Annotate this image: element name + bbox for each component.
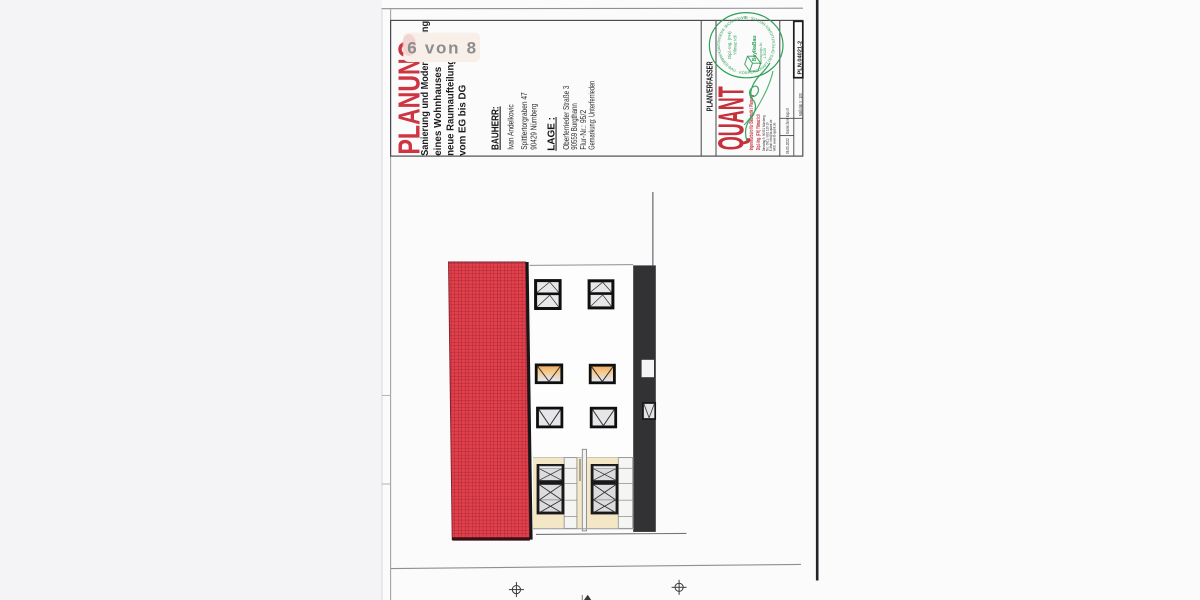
svg-text:Oberferrieder Straße 3: Oberferrieder Straße 3	[562, 85, 571, 149]
svg-text:1-5026: 1-5026	[763, 48, 767, 59]
svg-text:BayIkaBau: BayIkaBau	[752, 36, 758, 62]
svg-text:Web: www.ib-quant.de: Web: www.ib-quant.de	[772, 123, 777, 152]
svg-text:Spittlertorgraben 47: Spittlertorgraben 47	[520, 92, 530, 149]
svg-text:vom EG bis DG: vom EG bis DG	[457, 85, 468, 156]
svg-text:PLN.04021-2: PLN.04021-2	[797, 41, 803, 75]
svg-text:Flur-Nr.: 95/2: Flur-Nr.: 95/2	[579, 110, 589, 150]
svg-text:neue Raumaufteilung: neue Raumaufteilung	[445, 59, 457, 156]
svg-text:Gemarkung: Unterferrieden: Gemarkung: Unterferrieden	[589, 80, 597, 149]
svg-text:Gezeichnet Export: Gezeichnet Export	[786, 108, 791, 134]
svg-text:Ivan Andelkovic: Ivan Andelkovic	[506, 104, 516, 150]
svg-text:BAUHERR:: BAUHERR:	[488, 106, 500, 150]
svg-text:Ingenieurbüro für Baustatik /: Ingenieurbüro für Baustatik / Planung	[748, 94, 754, 150]
svg-text:LAGE :: LAGE :	[546, 117, 557, 151]
svg-text:06.05.2022: 06.05.2022	[786, 138, 791, 154]
svg-text:Dipl.-Ing. (FH) Yilmaz Icli: Dipl.-Ing. (FH) Yilmaz Icli	[755, 114, 761, 150]
svg-text:eines Wohnhauses: eines Wohnhauses	[433, 66, 444, 155]
svg-text:Maßstab 1 : 100: Maßstab 1 : 100	[798, 93, 803, 116]
svg-text:90429 Nürnberg: 90429 Nürnberg	[530, 104, 539, 150]
svg-text:Dipl.-Ing. (FH): Dipl.-Ing. (FH)	[727, 31, 732, 59]
svg-text:Yilmaz Icli: Yilmaz Icli	[733, 35, 738, 55]
svg-text:6 von 8: 6 von 8	[407, 39, 477, 58]
